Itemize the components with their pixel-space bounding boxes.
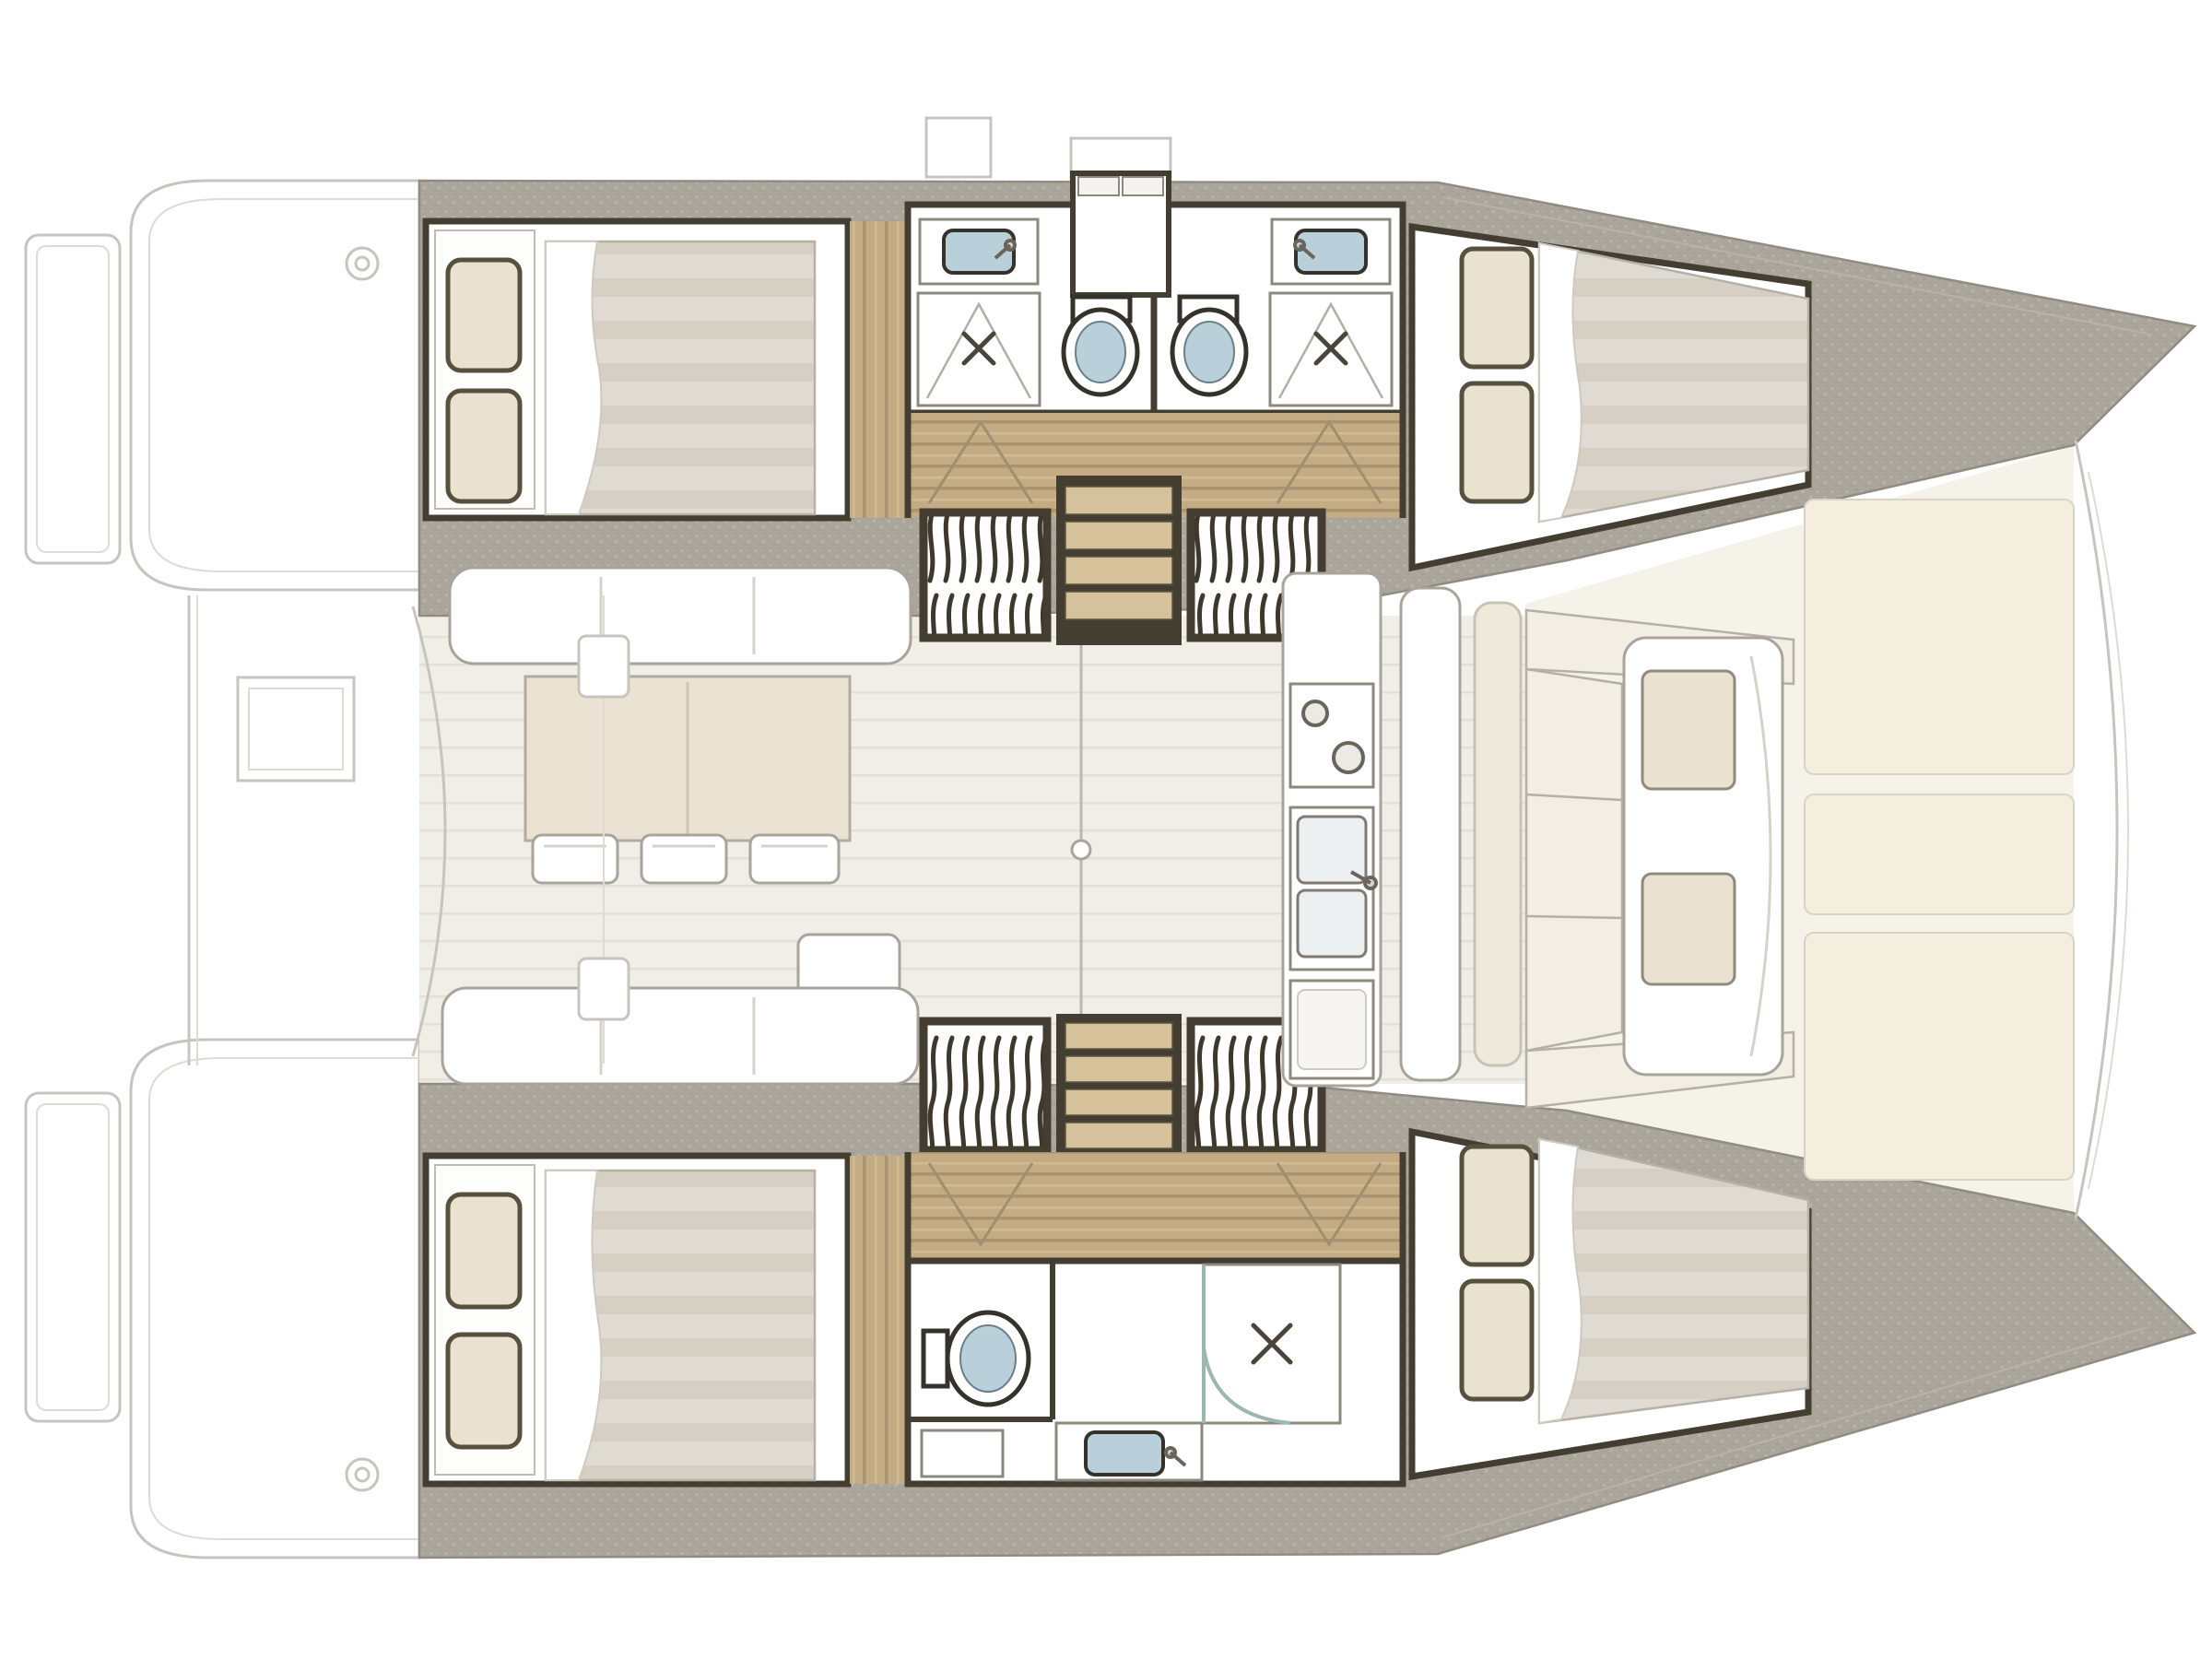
pillow	[448, 1194, 520, 1307]
step[interactable]	[1065, 557, 1172, 584]
starboard-aft-cabin	[426, 1156, 911, 1484]
toilet-bowl	[960, 1325, 1016, 1392]
galley	[1283, 573, 1381, 1086]
aft-sofa	[442, 988, 918, 1084]
deck-fitting	[579, 959, 629, 1019]
cabin-wood-floor	[850, 221, 911, 518]
coachroof-ghost-fitting	[926, 118, 991, 177]
step[interactable]	[1065, 1089, 1172, 1115]
sunpad-panel	[1805, 794, 2074, 914]
catamaran-floorplan: Catamaran interior deck plan	[0, 0, 2212, 1659]
washbasin	[1086, 1432, 1163, 1475]
forward-counter	[1401, 588, 1460, 1080]
stool[interactable]	[533, 835, 618, 883]
pillow	[1462, 1281, 1532, 1399]
cabin-wood-floor	[850, 1156, 911, 1484]
toilet-cistern	[924, 1331, 947, 1386]
step[interactable]	[1065, 487, 1172, 514]
pillow	[1462, 383, 1532, 501]
toilet-bowl	[1076, 322, 1125, 382]
louvered-panel	[924, 512, 1047, 638]
sliding-door-handle[interactable]	[1072, 841, 1090, 859]
port-aft-cabin	[426, 221, 911, 518]
swim-platform-port	[26, 235, 120, 563]
stool[interactable]	[641, 835, 726, 883]
forward-crossbeam-inner	[2088, 472, 2128, 1189]
step[interactable]	[1065, 1123, 1172, 1148]
head-cabinet	[922, 1430, 1003, 1477]
stove	[1290, 684, 1373, 787]
settee-cushion	[1642, 874, 1735, 984]
bed-sheet-fold	[546, 1171, 601, 1480]
pillow	[448, 260, 520, 371]
pillow	[1462, 249, 1532, 367]
step[interactable]	[1065, 1023, 1172, 1049]
louvered-panel	[924, 1021, 1047, 1150]
port-stern-cap	[131, 181, 419, 590]
sunpad-panel	[1805, 933, 2074, 1180]
toilet-bowl	[1184, 322, 1234, 382]
corridor-door-leaf[interactable]	[1123, 177, 1163, 195]
sink-basin	[1298, 890, 1366, 957]
sunpad-panel	[1805, 500, 2074, 774]
swim-platform-starboard	[26, 1093, 120, 1421]
stool[interactable]	[750, 835, 839, 883]
pillow	[448, 1335, 520, 1447]
step[interactable]	[1065, 592, 1172, 619]
deck-plan-canvas: Catamaran interior deck plan	[0, 0, 2212, 1659]
counter-seat-back	[1475, 603, 1521, 1065]
deck-fitting	[579, 636, 629, 697]
step[interactable]	[1065, 1056, 1172, 1082]
cockpit-table-ghost	[238, 677, 354, 781]
step[interactable]	[1065, 522, 1172, 549]
cabinet-front	[1298, 990, 1366, 1069]
stove-burner-icon	[1303, 701, 1327, 725]
forward-crossbeam-outer	[2076, 441, 2117, 1218]
starboard-companionway	[924, 1014, 1322, 1169]
settee-cushion	[1642, 671, 1735, 789]
pillow	[1462, 1147, 1532, 1265]
corridor-door-leaf[interactable]	[1078, 177, 1119, 195]
stove-burner-icon	[1334, 743, 1363, 772]
starboard-head-block	[908, 1152, 1403, 1484]
forward-sofa	[450, 568, 911, 664]
pillow	[448, 391, 520, 501]
forward-bench-section	[1526, 669, 1622, 1051]
